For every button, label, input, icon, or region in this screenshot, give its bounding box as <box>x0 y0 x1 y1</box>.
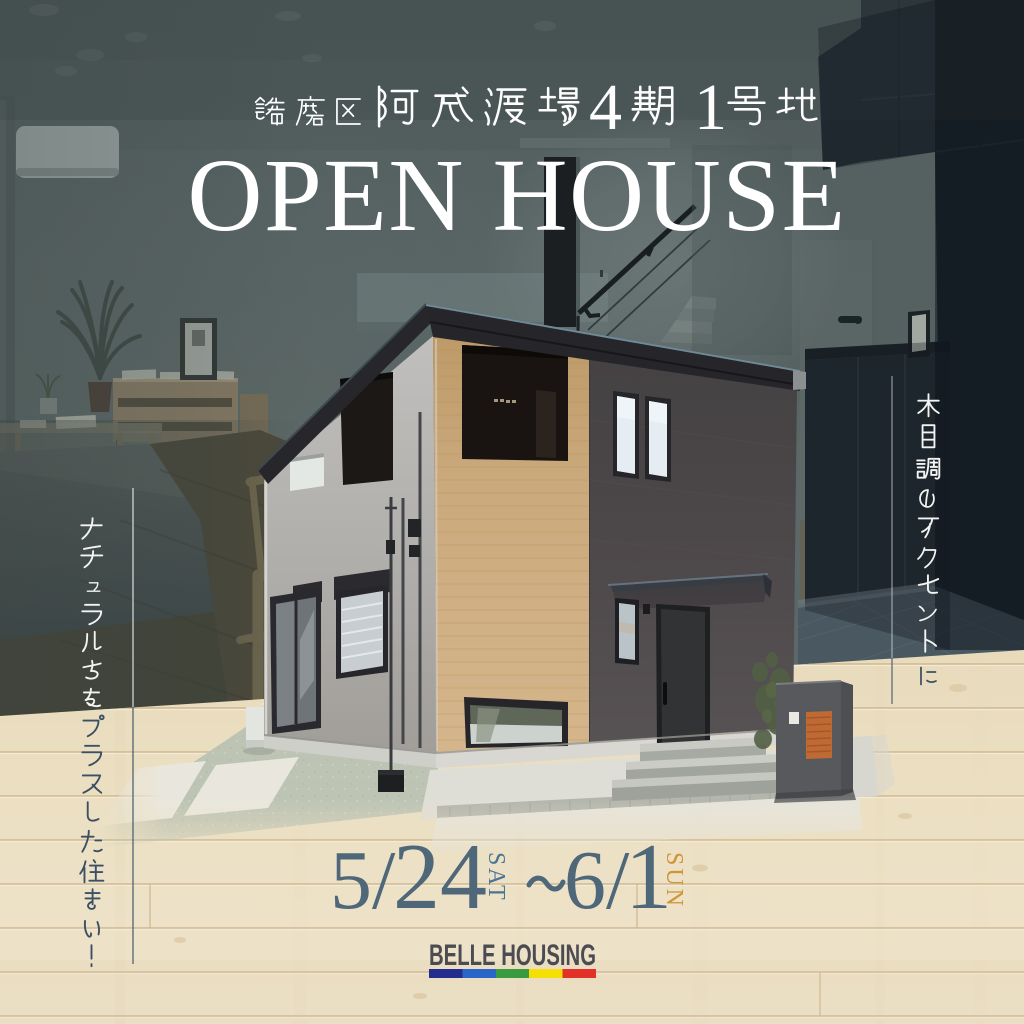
svg-text:24: 24 <box>393 825 487 929</box>
svg-text:OPEN HOUSE: OPEN HOUSE <box>187 138 846 253</box>
svg-text:SUN: SUN <box>661 852 687 909</box>
svg-text:4: 4 <box>589 71 622 144</box>
svg-text:1: 1 <box>694 71 727 144</box>
svg-text:BELLE HOUSING: BELLE HOUSING <box>429 939 596 972</box>
svg-text:5/: 5/ <box>330 834 396 927</box>
svg-text:6/: 6/ <box>564 834 630 927</box>
svg-text:SAT: SAT <box>483 852 509 902</box>
